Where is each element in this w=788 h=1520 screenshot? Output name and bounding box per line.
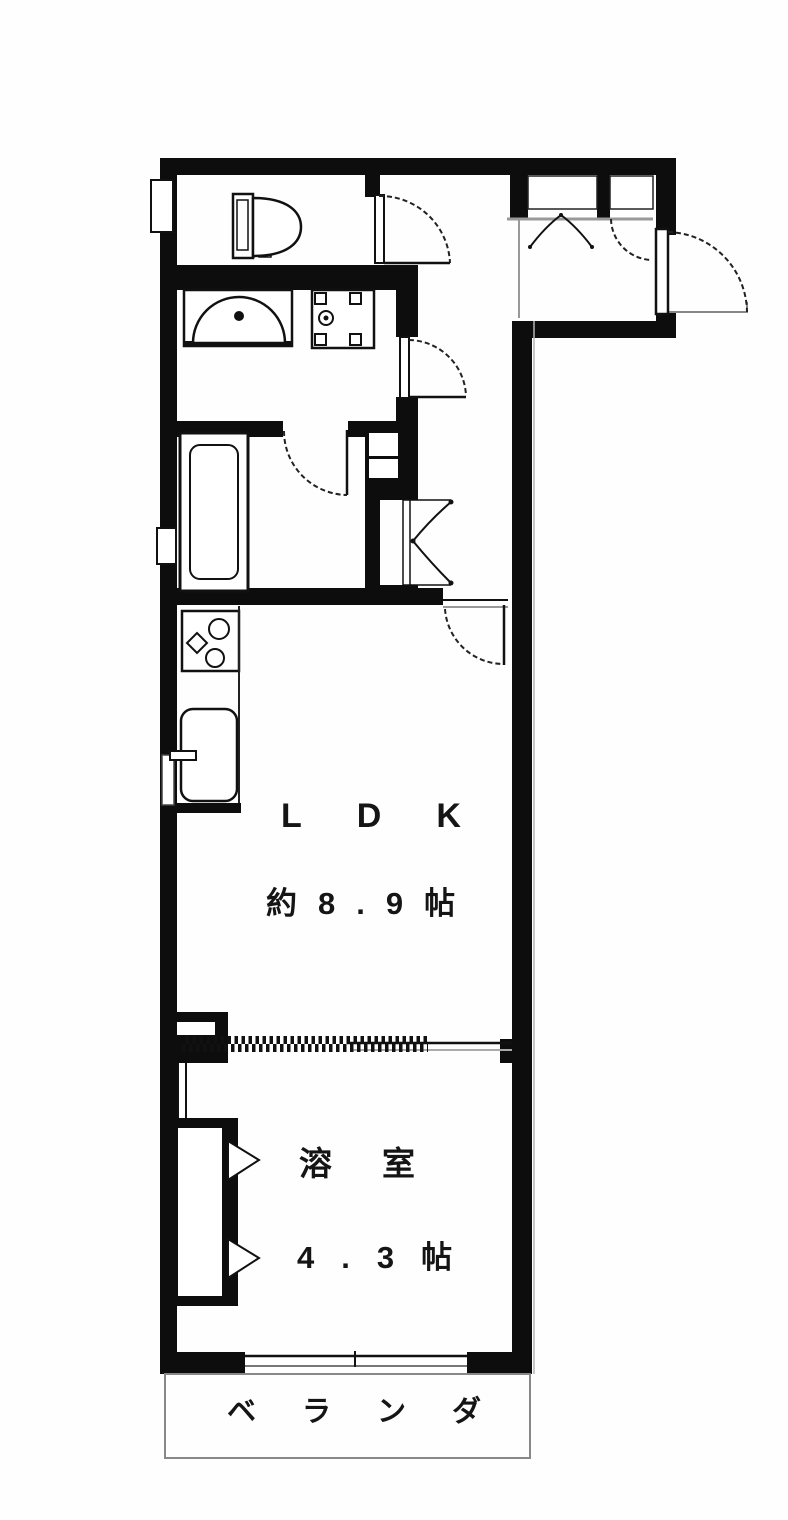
floor-plan-drawing (0, 0, 788, 1520)
wall-hall-closet-left (365, 500, 380, 585)
bedroom-side-window (178, 1063, 186, 1118)
closet-box-left (528, 176, 597, 209)
washroom-door-leaf (400, 337, 409, 398)
sink-faucet (170, 751, 196, 760)
closet-open-arrow (228, 1141, 259, 1180)
pan-drain-dot (324, 316, 329, 321)
wall-closet-mullion (597, 173, 610, 220)
pan-corner (315, 334, 326, 345)
ldk-door-arc (445, 609, 503, 664)
niche-a (369, 433, 398, 456)
ldk-room-label: LDK (281, 799, 516, 833)
washbasin-icon (184, 290, 292, 347)
pan-corner (350, 293, 361, 304)
wall-closet-left (510, 173, 528, 220)
entrance-closet-door-arc (611, 219, 652, 260)
wall-bottom-right (467, 1352, 532, 1374)
wall-under-toilet (160, 265, 418, 290)
wall-hall-left-a (396, 290, 418, 337)
veranda-label: ベランダ (227, 1398, 527, 1427)
bedroom-room-label: 溶室 (299, 1147, 465, 1180)
toilet-bowl (253, 198, 301, 256)
entrance-door-icon (656, 229, 668, 314)
niche-b (369, 459, 398, 478)
partition-notch (177, 1022, 215, 1035)
bifold-dot (528, 245, 532, 249)
wall-bottom-left (160, 1352, 245, 1374)
closet-bifold-icon (413, 502, 451, 583)
floor-plan: LDK 約8.9帖 溶室 4.3帖 ベランダ (0, 0, 788, 1520)
stove-burner (206, 649, 224, 667)
washroom-door-arc (409, 340, 466, 396)
bathtub-icon (180, 433, 248, 591)
stove-burner (209, 619, 229, 639)
hall-closet-opening (403, 500, 410, 585)
pipe-space (162, 755, 174, 805)
bifold-dot (590, 245, 594, 249)
bifold-dot (449, 500, 454, 505)
washing-machine-pan-icon (312, 290, 374, 348)
toilet-door-arc (379, 196, 450, 263)
bedroom-size-label: 4.3帖 (297, 1242, 479, 1273)
wall-entrance-right-upper (656, 158, 676, 235)
closet-open-arrow (228, 1239, 259, 1278)
toilet-icon (233, 194, 301, 258)
wall-toilet-stub (365, 175, 380, 197)
wall-entrance-bottom (512, 321, 676, 338)
toilet-door-leaf (375, 195, 384, 263)
washbasin-faucet-dot (234, 311, 244, 321)
bifold-dot (411, 539, 416, 544)
window-icon (151, 180, 173, 232)
pan-corner (315, 293, 326, 304)
bifold-dot (449, 581, 454, 586)
bifold-dot (559, 213, 563, 217)
entrance-door-arc (668, 232, 747, 312)
stove-icon (182, 611, 239, 671)
wall-right (512, 321, 532, 1374)
ldk-size-label: 約8.9帖 (266, 888, 476, 919)
window-icon (157, 528, 176, 564)
closet-box-right (610, 176, 653, 209)
bedroom-closet-interior (178, 1128, 222, 1296)
pan-corner (350, 334, 361, 345)
toilet-tank-inner (237, 200, 248, 250)
wall-top (160, 158, 676, 175)
entrance-closet (528, 176, 653, 209)
bathroom-door-arc (284, 431, 347, 495)
